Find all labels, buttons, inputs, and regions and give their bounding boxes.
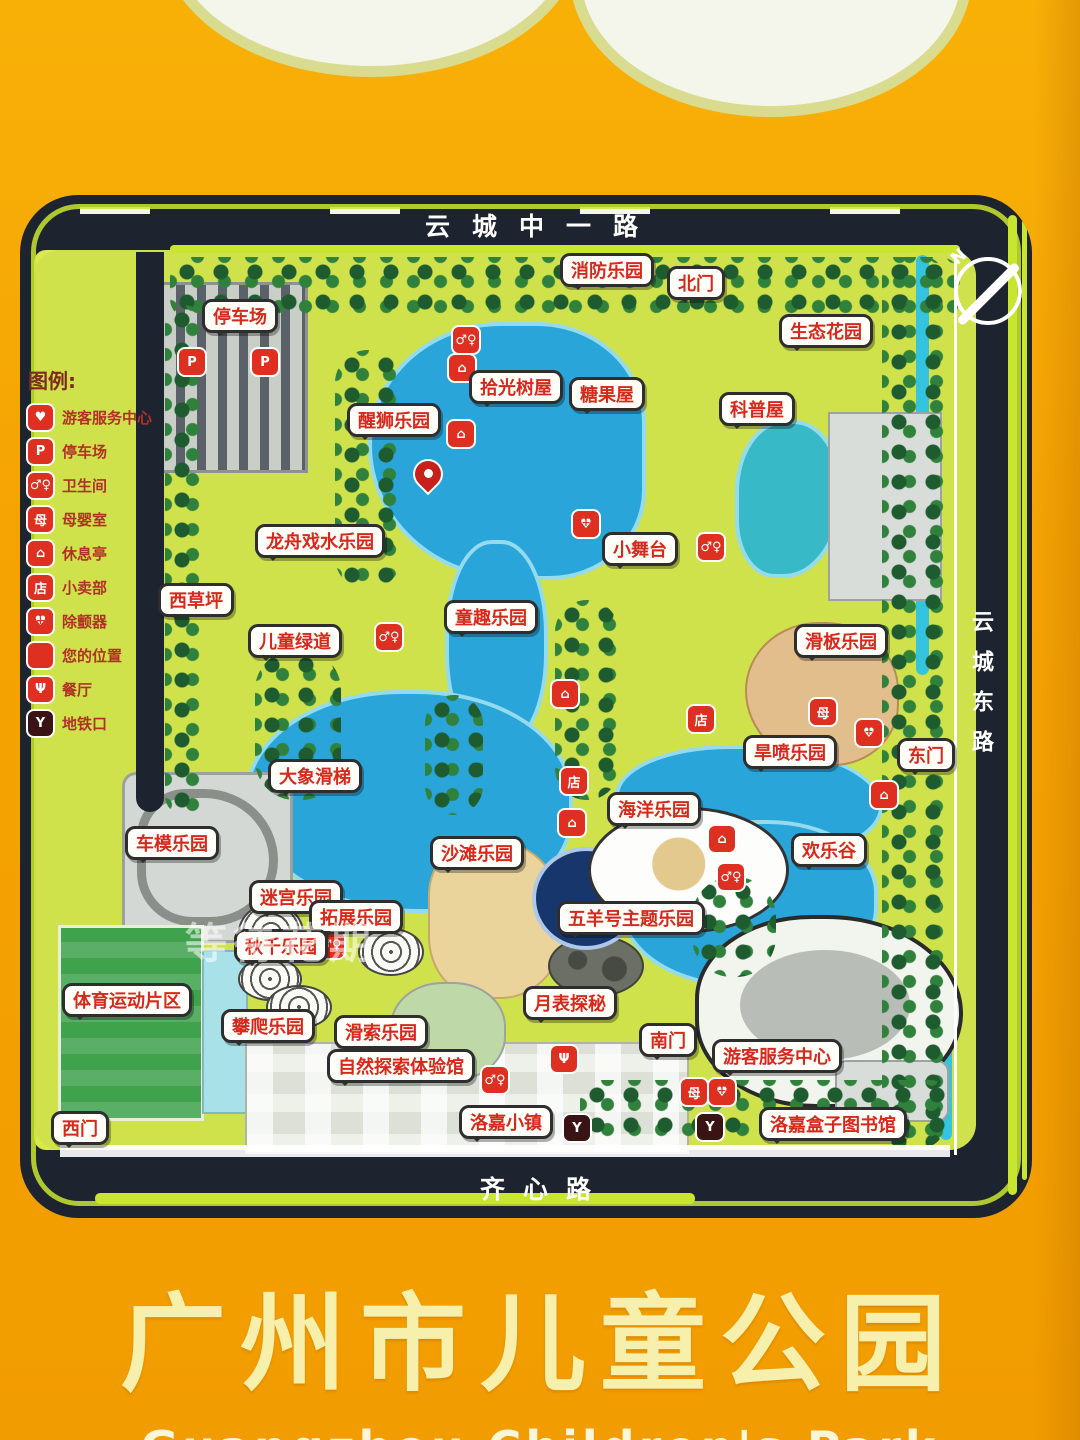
legend-item: 您的位置: [28, 638, 178, 672]
map-label: 童趣乐园: [444, 600, 538, 634]
aed-icon: ♥: [28, 609, 53, 634]
map-label: 龙舟戏水乐园: [255, 524, 385, 558]
toilet-icon: ♂♀: [718, 864, 744, 890]
pavilion-icon: ⌂: [709, 826, 735, 852]
parking-icon: P: [28, 439, 53, 464]
map-label: 五羊号主题乐园: [557, 901, 705, 935]
legend-item: Y地铁口: [28, 706, 178, 740]
map-label: 小舞台: [602, 532, 678, 566]
map-label: 东门: [897, 738, 955, 772]
map-label: 科普屋: [719, 392, 795, 426]
map-label: 车模乐园: [125, 826, 219, 860]
toilet-icon: ♂♀: [376, 624, 402, 650]
edge-stripe-top: [170, 245, 960, 253]
legend-item: ♥除颤器: [28, 604, 178, 638]
tree-belt-east: [882, 257, 944, 1147]
visitor-center-icon: ♥: [28, 405, 53, 430]
pin-icon: [28, 643, 53, 668]
decorative-oval-left: [160, 0, 582, 77]
map-label: 糖果屋: [569, 377, 645, 411]
legend-item-label: 小卖部: [62, 577, 107, 598]
legend-title: 图例:: [28, 365, 178, 394]
road-edge-line: [954, 255, 957, 1155]
legend-item-label: 卫生间: [62, 475, 107, 496]
map-label: 游客服务中心: [712, 1039, 842, 1073]
restaurant-icon: Ψ: [28, 677, 53, 702]
aed-icon: ♥: [573, 511, 599, 537]
sidewalk-south: [60, 1145, 950, 1157]
legend-item: 店小卖部: [28, 570, 178, 604]
map-label: 生态花园: [779, 314, 873, 348]
road-label-top: 云城中一路: [425, 207, 660, 243]
aed-icon: ♥: [856, 720, 882, 746]
restaurant-icon: Ψ: [551, 1046, 577, 1072]
legend-item: Ψ餐厅: [28, 672, 178, 706]
baby-icon: 母: [28, 507, 53, 532]
baby-icon: 母: [681, 1079, 707, 1105]
legend-item-label: 休息亭: [62, 543, 107, 564]
legend-items: ♥游客服务中心P停车场♂♀卫生间母母婴室⌂休息亭店小卖部♥除颤器您的位置Ψ餐厅Y…: [28, 400, 178, 740]
toilet-icon: ♂♀: [453, 327, 479, 353]
toilet-icon: ♂♀: [28, 473, 53, 498]
road-label-right: 云城东路: [964, 610, 996, 770]
toilet-icon: ♂♀: [482, 1067, 508, 1093]
map-label: 自然探索体验馆: [327, 1049, 475, 1083]
map-label: 欢乐谷: [791, 833, 867, 867]
map-label: 大象滑梯: [268, 759, 362, 793]
legend-item-label: 停车场: [62, 441, 107, 462]
edge-stripe-right2: [1022, 220, 1027, 1180]
legend-item: 母母婴室: [28, 502, 178, 536]
pavilion-icon: ⌂: [448, 421, 474, 447]
legend-item-label: 母婴室: [62, 509, 107, 530]
map-label: 北门: [667, 266, 725, 300]
road-label-bottom: 齐心路: [480, 1170, 609, 1206]
legend-item: P停车场: [28, 434, 178, 468]
map-label: 滑板乐园: [794, 624, 888, 658]
map-label: 旱喷乐园: [743, 735, 837, 769]
pin-icon: [412, 460, 446, 494]
map-label: 滑索乐园: [334, 1015, 428, 1049]
baby-icon: 母: [810, 699, 836, 725]
map-label: 体育运动片区: [62, 983, 192, 1017]
decorative-oval-right: [570, 0, 972, 117]
map-label: 醒狮乐园: [347, 403, 441, 437]
pavilion-icon: ⌂: [552, 681, 578, 707]
parking-icon: P: [179, 349, 205, 375]
edge-stripe-right: [1008, 215, 1017, 1195]
map-label: 西门: [51, 1111, 109, 1145]
compass-icon: N: [954, 257, 1022, 325]
watermark: 等待花期: [185, 910, 377, 971]
metro-icon: Y: [564, 1115, 590, 1141]
legend-item: ♂♀卫生间: [28, 468, 178, 502]
pavilion-icon: ⌂: [871, 782, 897, 808]
map-label: 海洋乐园: [607, 792, 701, 826]
kiosk-icon: 店: [28, 575, 53, 600]
signboard: 云城中一路 云城东路 齐心路 N 图例: ♥游客服务中心P停车场♂♀卫生间母母婴…: [0, 0, 1080, 1440]
legend: 图例: ♥游客服务中心P停车场♂♀卫生间母母婴室⌂休息亭店小卖部♥除颤器您的位置…: [28, 365, 178, 740]
aed-icon: ♥: [709, 1079, 735, 1105]
park-title-english-partial: Guangzhou Children's Park: [0, 1421, 1080, 1440]
legend-item-label: 除颤器: [62, 611, 107, 632]
map-label: 消防乐园: [560, 253, 654, 287]
legend-item-label: 地铁口: [62, 713, 107, 734]
map-label: 月表探秘: [523, 986, 617, 1020]
map-label: 洛嘉盒子图书馆: [759, 1107, 907, 1141]
metro-icon: Y: [697, 1114, 723, 1140]
map-label: 儿童绿道: [248, 624, 342, 658]
legend-item: ♥游客服务中心: [28, 400, 178, 434]
map-label: 攀爬乐园: [221, 1009, 315, 1043]
map-label: 停车场: [202, 299, 278, 333]
legend-item-label: 您的位置: [62, 645, 122, 666]
park-map: 云城中一路 云城东路 齐心路 N 图例: ♥游客服务中心P停车场♂♀卫生间母母婴…: [20, 195, 1032, 1218]
map-label: 南门: [639, 1023, 697, 1057]
legend-item: ⌂休息亭: [28, 536, 178, 570]
legend-item-label: 游客服务中心: [62, 407, 152, 428]
map-label: 沙滩乐园: [430, 836, 524, 870]
kiosk-icon: 店: [688, 706, 714, 732]
kiosk-icon: 店: [561, 768, 587, 794]
pavilion-icon: ⌂: [28, 541, 53, 566]
parking-icon: P: [252, 349, 278, 375]
legend-item-label: 餐厅: [62, 679, 92, 700]
map-label: 拾光树屋: [469, 370, 563, 404]
tree-cluster: [425, 695, 483, 815]
toilet-icon: ♂♀: [698, 534, 724, 560]
metro-icon: Y: [28, 711, 53, 736]
pavilion-icon: ⌂: [559, 810, 585, 836]
park-title: 广州市儿童公园: [0, 1258, 1080, 1412]
map-label: 洛嘉小镇: [459, 1105, 553, 1139]
